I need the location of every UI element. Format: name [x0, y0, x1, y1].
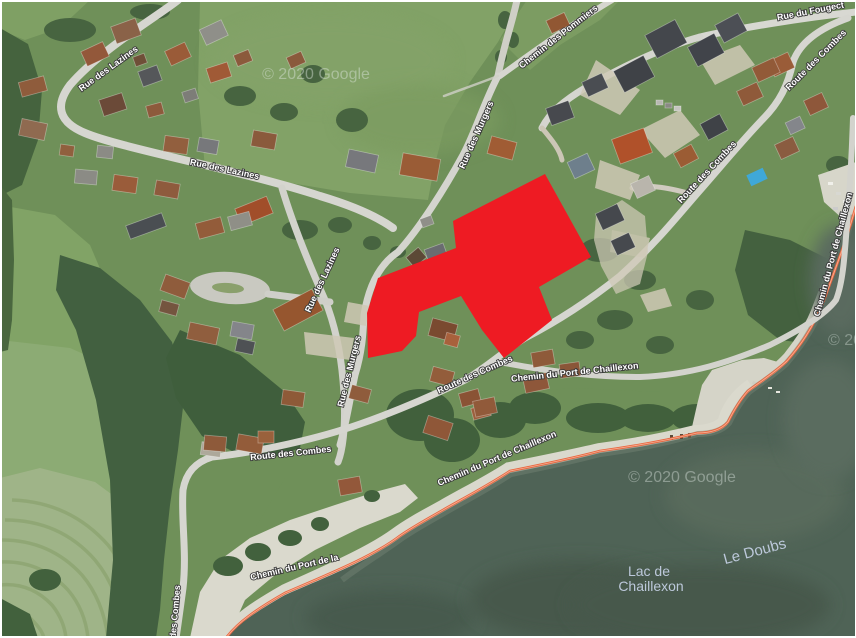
svg-text:© 2020 Google: © 2020 Google [628, 469, 736, 486]
svg-text:Lac de: Lac de [628, 563, 670, 579]
svg-text:© 20: © 20 [828, 332, 856, 349]
svg-text:Chaillexon: Chaillexon [618, 578, 683, 594]
svg-text:© 2020 Google: © 2020 Google [262, 66, 370, 83]
